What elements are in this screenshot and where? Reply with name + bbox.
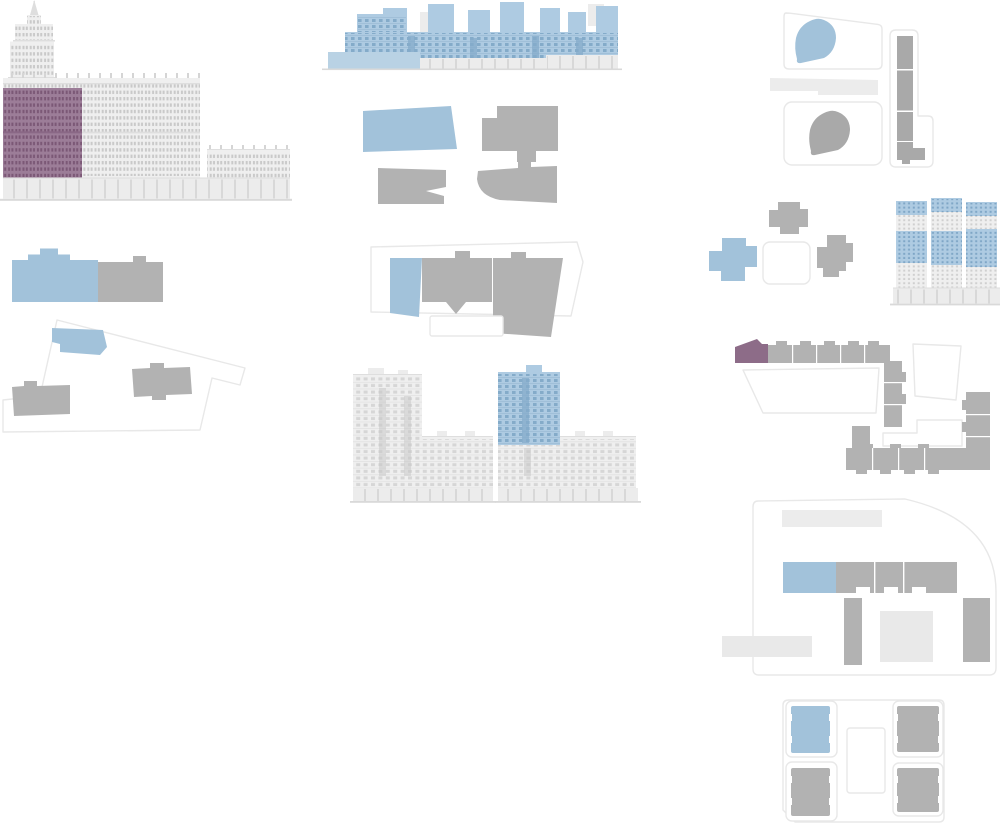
strip-tab	[902, 160, 910, 164]
spire-cone	[30, 0, 39, 15]
tower-highlight-blue[interactable]	[498, 372, 560, 445]
blue-band-windows	[896, 232, 927, 263]
wing-windows	[422, 439, 493, 488]
section-divider	[903, 562, 904, 593]
plan-section[interactable]	[844, 598, 862, 665]
site-plan-quarter-round	[722, 499, 996, 675]
section-divider	[924, 448, 925, 470]
edge-notch	[789, 776, 792, 783]
landscape-strip	[770, 78, 878, 95]
plan-section-selected[interactable]	[783, 562, 836, 593]
ground-line	[322, 69, 622, 71]
tower-1[interactable]	[896, 201, 927, 288]
tower-windows	[353, 377, 422, 488]
row-tab	[918, 444, 929, 448]
plan-section-selected[interactable]	[52, 328, 107, 355]
plan-row[interactable]	[836, 562, 957, 594]
section-divider	[966, 414, 990, 415]
right-podium-pilasters	[547, 56, 617, 69]
row-body[interactable]	[846, 448, 968, 470]
row-tab	[880, 470, 891, 474]
edge-notch	[938, 776, 941, 783]
section-divider	[872, 448, 873, 470]
plan-section[interactable]	[963, 598, 990, 662]
site-plan-u-block	[735, 339, 990, 474]
balcony-stack	[524, 448, 531, 476]
roof-block	[428, 4, 454, 32]
tower-2[interactable]	[931, 198, 962, 288]
column-body[interactable]	[966, 392, 990, 470]
building-selector-svg	[0, 0, 1000, 826]
building-fill	[791, 768, 830, 816]
edge-notch	[829, 798, 832, 805]
plan-building-selected[interactable]	[12, 249, 98, 303]
purple-section-windows	[3, 90, 82, 177]
roof-parapet-posts	[3, 73, 200, 78]
landscape-strip	[722, 636, 812, 657]
edge-notch	[789, 736, 792, 743]
row-tab	[890, 444, 901, 448]
row-tab	[824, 341, 835, 345]
building-selector-canvas	[0, 0, 1000, 826]
courtyard-pad	[880, 611, 933, 662]
row-tab	[862, 444, 873, 448]
balcony-stack	[532, 36, 539, 60]
roof-block	[468, 10, 490, 32]
plan-column-right[interactable]	[962, 392, 990, 470]
left-podium[interactable]	[328, 52, 420, 69]
plan-section[interactable]	[378, 168, 446, 204]
plan-building[interactable]	[789, 768, 832, 816]
site-outline	[3, 320, 245, 432]
roof-box-selected	[526, 365, 542, 373]
column-tab	[962, 400, 966, 410]
tower-cap-windows	[27, 16, 41, 24]
courtyard-outline	[430, 316, 503, 336]
edge-notch	[789, 798, 792, 805]
section-divider	[816, 345, 817, 363]
column-body[interactable]	[884, 361, 902, 427]
plan-building[interactable]	[895, 768, 941, 812]
row-tab	[928, 470, 939, 474]
floor-plan-footprints-cluster	[363, 106, 558, 204]
section-divider	[840, 345, 841, 363]
section-divider	[874, 562, 875, 593]
section-divider	[884, 404, 902, 405]
building-fill	[791, 706, 830, 753]
ground-line	[495, 501, 641, 503]
building-elevation-waterfront-slab[interactable]	[322, 2, 622, 70]
strip-segment[interactable]	[897, 71, 913, 111]
base-pilasters	[3, 180, 290, 199]
column-tab	[962, 422, 966, 432]
tower-3[interactable]	[966, 202, 997, 288]
base-pilasters	[354, 489, 492, 501]
strip-segment[interactable]	[897, 112, 913, 141]
main-cornice-top	[3, 83, 200, 84]
balcony-stack	[470, 38, 477, 60]
section-divider	[966, 436, 990, 437]
edge-notch	[938, 736, 941, 743]
site-plan-crosses	[709, 202, 853, 284]
edge-notch	[938, 714, 941, 721]
site-plan-left-chevron	[3, 320, 245, 432]
podium-pilasters	[894, 290, 999, 304]
low-wing-windows	[207, 152, 290, 178]
plan-section-selected[interactable]	[390, 258, 422, 317]
section-divider	[884, 382, 902, 383]
blue-band-windows	[931, 232, 962, 265]
building-elevation-twin-towers[interactable]	[350, 365, 641, 503]
section-divider	[864, 345, 865, 363]
strip-segment[interactable]	[897, 36, 913, 69]
section-highlight-purple[interactable]	[3, 88, 82, 178]
edge-notch	[829, 736, 832, 743]
plan-building[interactable]	[895, 706, 941, 752]
plan-section[interactable]	[12, 381, 70, 416]
row-tab	[800, 341, 811, 345]
section-divider	[898, 448, 899, 470]
plan-section[interactable]	[477, 162, 557, 203]
roof-block	[568, 12, 586, 32]
edge-notch	[895, 714, 898, 721]
plan-cross[interactable]	[769, 202, 808, 234]
roof-block	[540, 8, 560, 32]
edge-notch	[789, 714, 792, 721]
building-fill	[897, 768, 939, 812]
plan-section[interactable]	[482, 106, 558, 162]
roof-block	[596, 6, 618, 32]
row-notch	[884, 587, 898, 594]
row-notch	[912, 587, 926, 594]
blue-band-windows	[966, 203, 997, 216]
blue-band-windows	[966, 230, 997, 267]
edge-notch	[895, 776, 898, 783]
site-plan-quad-courtyard	[783, 700, 944, 822]
landscape-strip	[782, 510, 882, 527]
plan-cross[interactable]	[817, 235, 853, 277]
plan-column-right-of-courtyard[interactable]	[884, 361, 906, 427]
courtyard-outline	[847, 728, 885, 793]
row-tab	[868, 341, 879, 345]
plan-section-selected-purple[interactable]	[735, 339, 768, 363]
mid-podium-pilasters	[421, 59, 545, 69]
plan-row-top[interactable]	[768, 341, 890, 363]
roof-box	[368, 368, 384, 375]
courtyard-outline	[743, 368, 879, 413]
edge-notch	[895, 736, 898, 743]
ground-line	[0, 199, 292, 201]
site-plan-terraced	[371, 242, 583, 337]
edge-notch	[829, 714, 832, 721]
row-notch	[856, 587, 870, 594]
plan-cross-selected[interactable]	[709, 238, 757, 281]
site-plan-top-right	[770, 13, 933, 167]
blue-band-windows	[896, 202, 927, 215]
wing-windows	[560, 439, 636, 488]
tower-mid-windows	[10, 43, 54, 77]
balcony-stack	[379, 388, 386, 476]
plan-cell-outline	[763, 242, 810, 284]
row-tab	[848, 341, 859, 345]
plan-building[interactable]	[98, 256, 163, 302]
plan-building-selected[interactable]	[789, 706, 832, 753]
building-fill	[897, 706, 939, 752]
plan-row-bottom[interactable]	[846, 444, 968, 474]
building-elevation-tower-block[interactable]	[0, 0, 292, 201]
balcony-stack	[404, 396, 411, 476]
ground-line	[890, 304, 1000, 306]
courtyard-outline	[913, 344, 961, 400]
column-tab	[902, 372, 906, 382]
section-divider	[792, 345, 793, 363]
purple-section-cornice	[3, 131, 82, 133]
balcony-stack	[522, 378, 529, 443]
column-tab	[902, 394, 906, 404]
tower-upper-windows	[15, 25, 53, 40]
row-tab	[856, 470, 867, 474]
edge-notch	[829, 776, 832, 783]
row-tab	[776, 341, 787, 345]
base-pilasters	[499, 489, 637, 501]
building-elevation-three-towers[interactable]	[890, 198, 1000, 305]
ground-line	[350, 501, 496, 503]
site-plan-left-bar	[12, 249, 163, 303]
roof-block	[500, 2, 524, 32]
edge-notch	[895, 796, 898, 803]
edge-notch	[938, 796, 941, 803]
row-tab	[904, 470, 915, 474]
tower-cornice	[13, 40, 55, 42]
blue-band-windows	[931, 199, 962, 212]
plan-section-selected[interactable]	[363, 106, 457, 152]
row-body[interactable]	[768, 345, 890, 363]
